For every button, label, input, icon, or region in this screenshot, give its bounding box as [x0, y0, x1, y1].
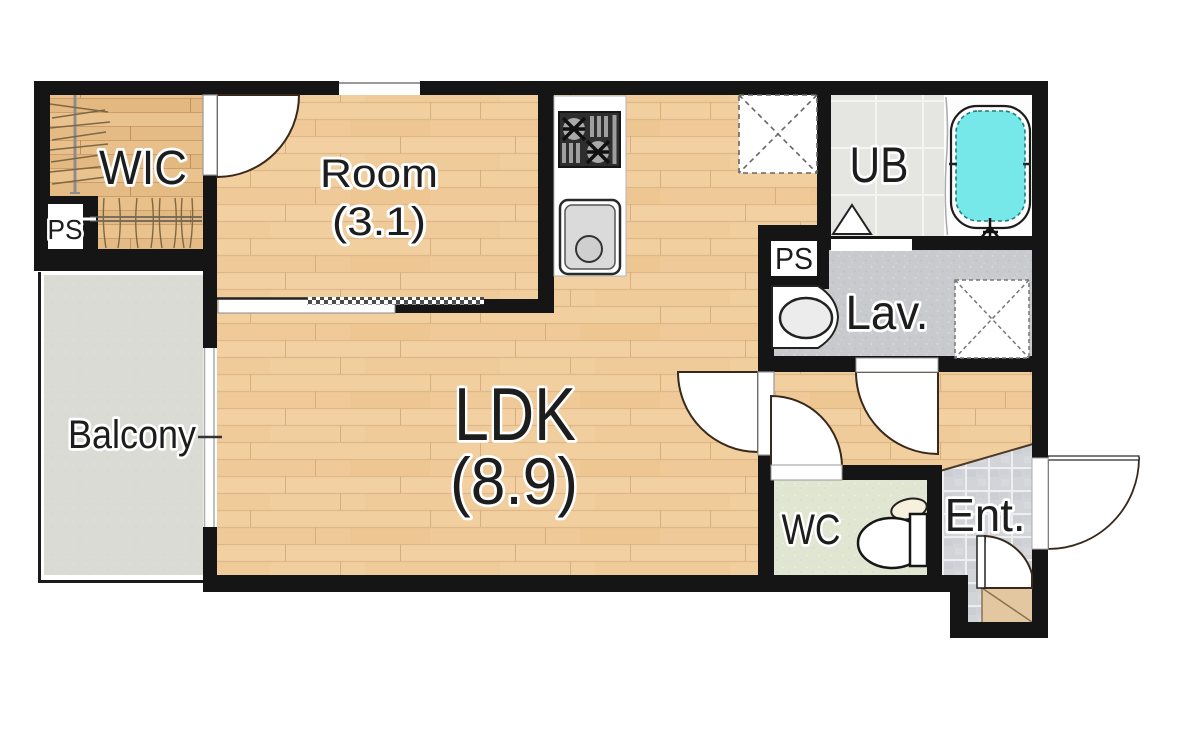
- svg-text:UB: UB: [850, 137, 909, 193]
- svg-text:Room: Room: [320, 152, 438, 196]
- svg-text:WC: WC: [782, 506, 841, 554]
- svg-text:Balcony: Balcony: [68, 413, 196, 457]
- svg-text:(3.1): (3.1): [332, 200, 426, 244]
- svg-text:Ent.: Ent.: [945, 489, 1026, 541]
- svg-text:PS: PS: [775, 241, 813, 276]
- svg-text:WIC: WIC: [99, 142, 187, 195]
- svg-text:Lav.: Lav.: [846, 287, 929, 340]
- svg-text:PS: PS: [48, 214, 83, 245]
- svg-text:(8.9): (8.9): [450, 444, 578, 518]
